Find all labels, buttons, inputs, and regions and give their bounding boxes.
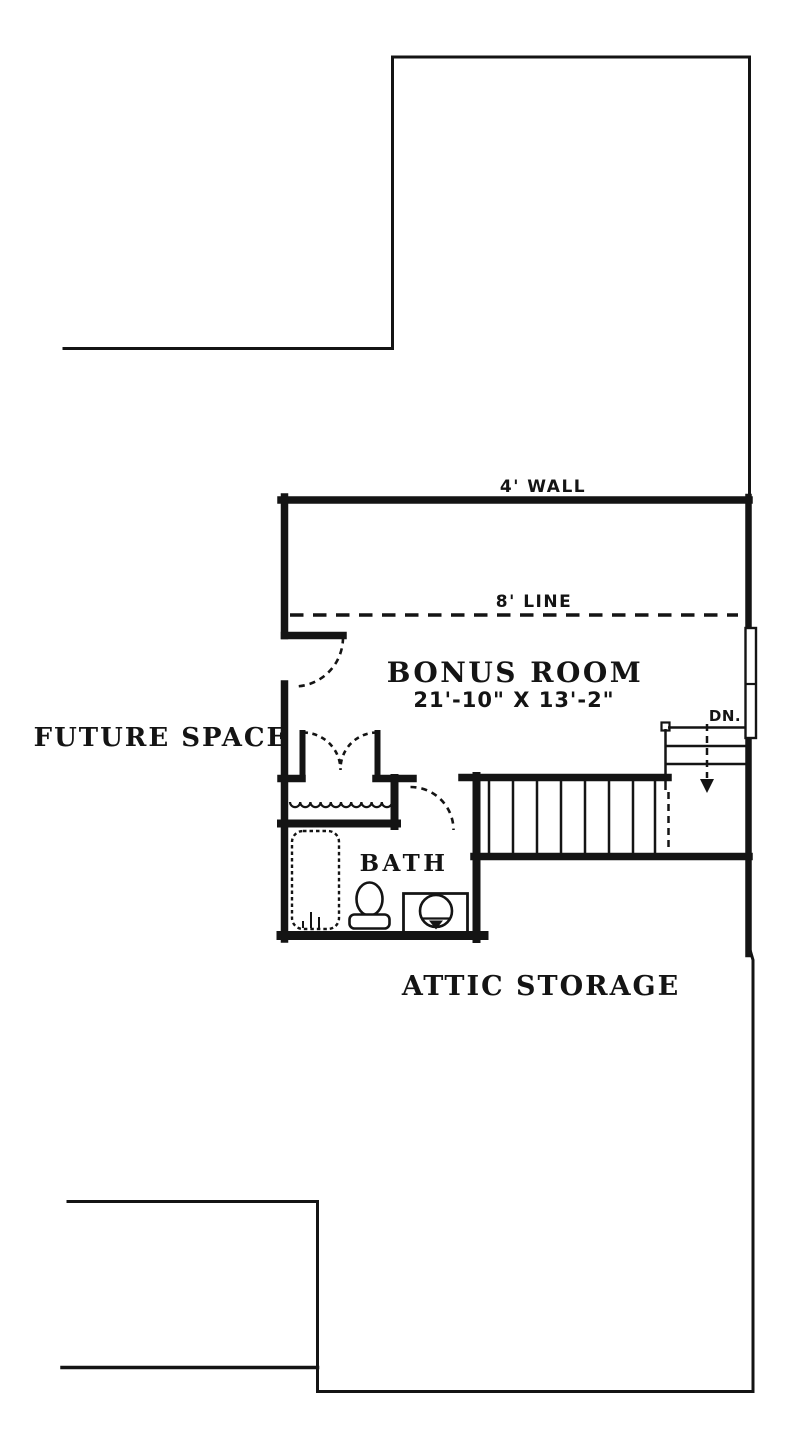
closet-door-arc-left (303, 733, 341, 771)
label-stairs-down: DN. (709, 707, 741, 725)
label-4ft-wall: 4' WALL (500, 477, 586, 497)
label-attic-storage: ATTIC STORAGE (401, 971, 680, 1002)
stair-direction-arrow (700, 779, 714, 793)
label-future-space: FUTURE SPACE (34, 723, 289, 753)
closet-double-doors (303, 730, 378, 778)
toilet-bowl (357, 883, 383, 916)
bathtub-outline (292, 831, 339, 929)
stair-lower-run (489, 781, 655, 853)
label-bonus-room: BONUS ROOM (387, 656, 644, 689)
walls (281, 497, 749, 954)
entry-door-swing-arc (294, 638, 343, 687)
toilet-tank (350, 915, 390, 929)
toilet (350, 883, 390, 929)
stairs (489, 723, 746, 854)
bathtub-faucet (303, 912, 319, 928)
stair-direction (669, 724, 715, 850)
outline-top-left (64, 57, 750, 349)
closet-door-arc-right (341, 733, 378, 770)
bathtub (292, 831, 339, 929)
floor-plan-canvas: 4' WALL 8' LINE BONUS ROOM 21'-10" X 13'… (0, 0, 800, 1444)
label-8ft-line: 8' LINE (496, 592, 572, 612)
closet-hanger-rod (290, 802, 392, 807)
bath-fixtures (292, 831, 468, 931)
label-bath: BATH (360, 850, 449, 877)
east-window (746, 628, 757, 738)
floor-plan-page: 4' WALL 8' LINE BONUS ROOM 21'-10" X 13'… (0, 0, 800, 1444)
bath-door-swing-arc (411, 787, 454, 830)
outline-bottom (68, 1202, 753, 1392)
label-bonus-room-dimensions: 21'-10" X 13'-2" (413, 688, 614, 712)
vanity-sink (404, 894, 468, 932)
